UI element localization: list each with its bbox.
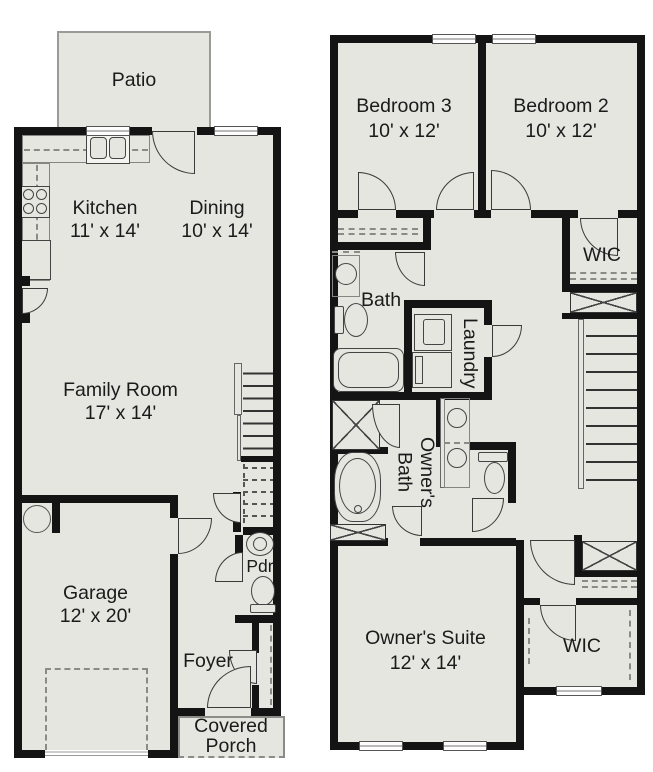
- wall-stub: [14, 313, 30, 323]
- foyer-label: Foyer: [170, 651, 246, 673]
- interior-wall: [252, 623, 259, 653]
- counter-dashed: [444, 442, 470, 444]
- stair-divider: [241, 456, 273, 462]
- door-opening: [170, 518, 178, 554]
- closet-rod-dashed: [270, 625, 272, 705]
- interior-wall: [404, 300, 412, 400]
- toilet-bowl: [251, 576, 275, 606]
- sink-bowl: [253, 537, 267, 551]
- bedroom3-dims: 10' x 12': [334, 121, 474, 143]
- exterior-wall: [516, 687, 524, 750]
- interior-wall: [420, 538, 516, 546]
- powder-label: Pdr: [235, 557, 285, 577]
- bedroom2-label: Bedroom 2: [491, 96, 631, 118]
- interior-wall: [574, 535, 582, 572]
- toilet-bowl: [484, 462, 505, 494]
- dining-dims: 10' x 14': [152, 221, 282, 243]
- garage-parking-dashed: [45, 668, 148, 750]
- stairs: [586, 319, 637, 489]
- patio-label: Patio: [57, 70, 211, 92]
- bedroom3-label: Bedroom 3: [334, 96, 474, 118]
- interior-wall: [330, 242, 423, 250]
- exterior-wall: [637, 35, 645, 695]
- sink-basin: [109, 137, 126, 159]
- wall-stub: [52, 495, 60, 533]
- stairs: [243, 362, 273, 458]
- linen-closet-x: [570, 292, 637, 313]
- interior-wall: [423, 218, 431, 250]
- owners-suite-label: Owner's Suite: [335, 628, 516, 650]
- stove-burner: [23, 203, 34, 214]
- stair-railing: [237, 415, 241, 461]
- shelf-dashed: [338, 228, 418, 230]
- door-opening: [358, 210, 396, 218]
- counter-dashed: [332, 251, 360, 253]
- bedroom2-dims: 10' x 12': [491, 121, 631, 143]
- family-room-dims: 17' x 14': [38, 403, 203, 425]
- garage-dims: 12' x 20': [28, 606, 163, 628]
- interior-wall: [508, 446, 516, 503]
- refrigerator: [20, 240, 51, 280]
- window: [432, 34, 476, 44]
- interior-wall: [14, 495, 178, 503]
- kitchen-label: Kitchen: [40, 198, 170, 220]
- linen-closet-x: [582, 541, 637, 571]
- shelf-dashed: [338, 233, 418, 235]
- tub-drain: [354, 505, 362, 513]
- window: [556, 686, 602, 696]
- wall-stub: [14, 276, 30, 286]
- toilet-tank: [250, 604, 276, 613]
- dining-label: Dining: [152, 198, 282, 220]
- vanity-sink: [335, 263, 357, 285]
- garage-door: [45, 750, 148, 758]
- owners-suite-dims: 12' x 14': [335, 653, 516, 675]
- floor-plan: Patio Kitchen 11' x 14' Dining 10' x 14'…: [0, 0, 653, 772]
- window: [86, 126, 130, 136]
- interior-wall: [562, 284, 645, 292]
- door-opening: [578, 210, 618, 218]
- water-heater: [23, 505, 51, 533]
- garage-label: Garage: [28, 583, 163, 605]
- wic-upper-label: WIC: [566, 245, 638, 267]
- washer-door: [415, 356, 423, 384]
- covered-porch-label: Covered Porch: [181, 716, 281, 757]
- vanity-sink: [447, 448, 467, 468]
- linen-closet-x: [330, 524, 386, 541]
- vanity-sink: [447, 408, 467, 428]
- bath-label: Bath: [346, 290, 416, 312]
- shelf-dashed: [570, 272, 637, 274]
- stairs-dashed: [243, 464, 273, 526]
- exterior-wall: [14, 127, 22, 758]
- window: [214, 126, 258, 136]
- shelf-dashed: [528, 618, 530, 664]
- interior-wall: [252, 685, 259, 708]
- stair-railing: [578, 319, 584, 489]
- bathtub-inner: [338, 352, 399, 388]
- shelf-dashed: [582, 580, 637, 582]
- laundry-label: Laundry: [452, 306, 480, 401]
- toilet-tank: [478, 452, 508, 462]
- stair-railing: [234, 363, 242, 415]
- window: [492, 34, 536, 44]
- interior-wall: [484, 308, 492, 325]
- stove-burner: [23, 189, 34, 200]
- interior-wall: [516, 540, 524, 603]
- sink-basin: [90, 137, 107, 159]
- shelf-dashed: [582, 586, 637, 588]
- hall-opening: [434, 210, 474, 218]
- owners-bath-label: Owner's Bath: [388, 426, 438, 518]
- kitchen-dims: 11' x 14': [40, 221, 170, 243]
- interior-wall: [516, 598, 524, 690]
- shelf-dashed: [629, 610, 631, 680]
- interior-wall: [235, 615, 281, 623]
- wic-lower-label: WIC: [542, 636, 622, 658]
- door-opening: [491, 210, 531, 218]
- exterior-wall: [330, 35, 645, 43]
- family-room-label: Family Room: [38, 380, 203, 402]
- toilet-tank: [334, 306, 344, 334]
- interior-wall: [478, 35, 486, 218]
- shelf-dashed: [570, 278, 637, 280]
- window: [359, 741, 403, 751]
- interior-wall: [576, 598, 637, 605]
- interior-wall: [574, 571, 645, 577]
- interior-wall: [524, 598, 540, 605]
- dryer-door: [423, 319, 445, 345]
- window: [443, 741, 487, 751]
